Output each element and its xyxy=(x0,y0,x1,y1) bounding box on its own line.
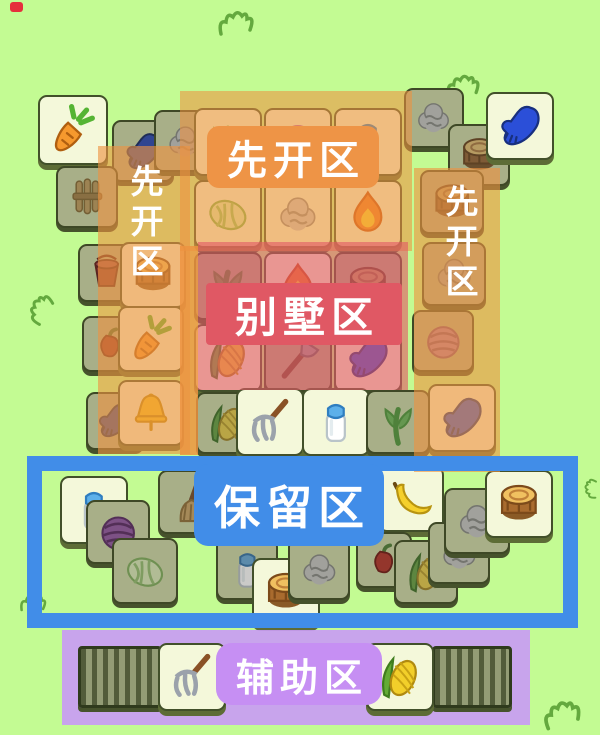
zone-assist-label: 辅助区 xyxy=(216,643,382,705)
grass-tuft-icon xyxy=(212,8,262,38)
zone-open-top-label: 先开区 xyxy=(207,126,379,188)
grass-tuft-icon xyxy=(538,694,589,734)
zone-open-left-label: 先开区 xyxy=(120,164,168,284)
zone-open-right-label: 先开区 xyxy=(435,184,483,304)
carrot-icon xyxy=(45,102,100,157)
tile-stack-side[interactable] xyxy=(432,646,512,708)
fork-icon xyxy=(243,395,297,449)
zone-open-left-overlay: 先开区 xyxy=(98,146,190,454)
zone-villa-label: 别墅区 xyxy=(206,283,402,345)
milk-icon xyxy=(309,395,363,449)
tile-stack-side[interactable] xyxy=(78,646,162,708)
fork-icon xyxy=(165,650,219,704)
tile-fork[interactable] xyxy=(236,388,304,456)
glove-icon xyxy=(493,99,547,153)
tile-milk[interactable] xyxy=(302,388,370,456)
zone-reserve-label: 保留区 xyxy=(194,464,384,546)
tile-glove[interactable] xyxy=(486,92,554,160)
game-screen: 先开区 先开区 先开区 别墅区 保留区 辅助区 xyxy=(0,0,600,735)
zone-open-right-overlay: 先开区 xyxy=(414,168,500,472)
grass-tuft-icon xyxy=(16,283,65,332)
recording-indicator-dot xyxy=(10,2,23,12)
